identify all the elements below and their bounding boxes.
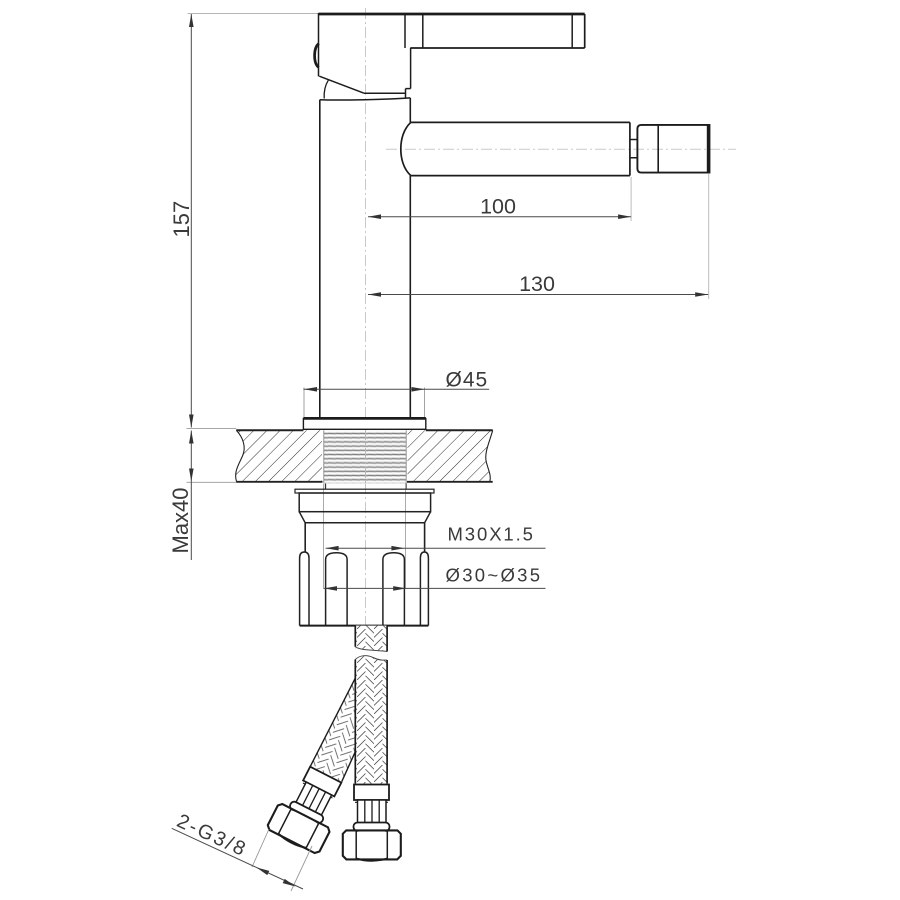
svg-text:Ø30~Ø35: Ø30~Ø35 (446, 565, 543, 586)
svg-text:Max40: Max40 (168, 487, 193, 553)
svg-text:157: 157 (169, 201, 194, 238)
svg-text:100: 100 (480, 195, 516, 219)
svg-text:Ø45: Ø45 (446, 369, 489, 392)
svg-text:M30X1.5: M30X1.5 (448, 524, 535, 545)
svg-text:130: 130 (519, 272, 555, 296)
